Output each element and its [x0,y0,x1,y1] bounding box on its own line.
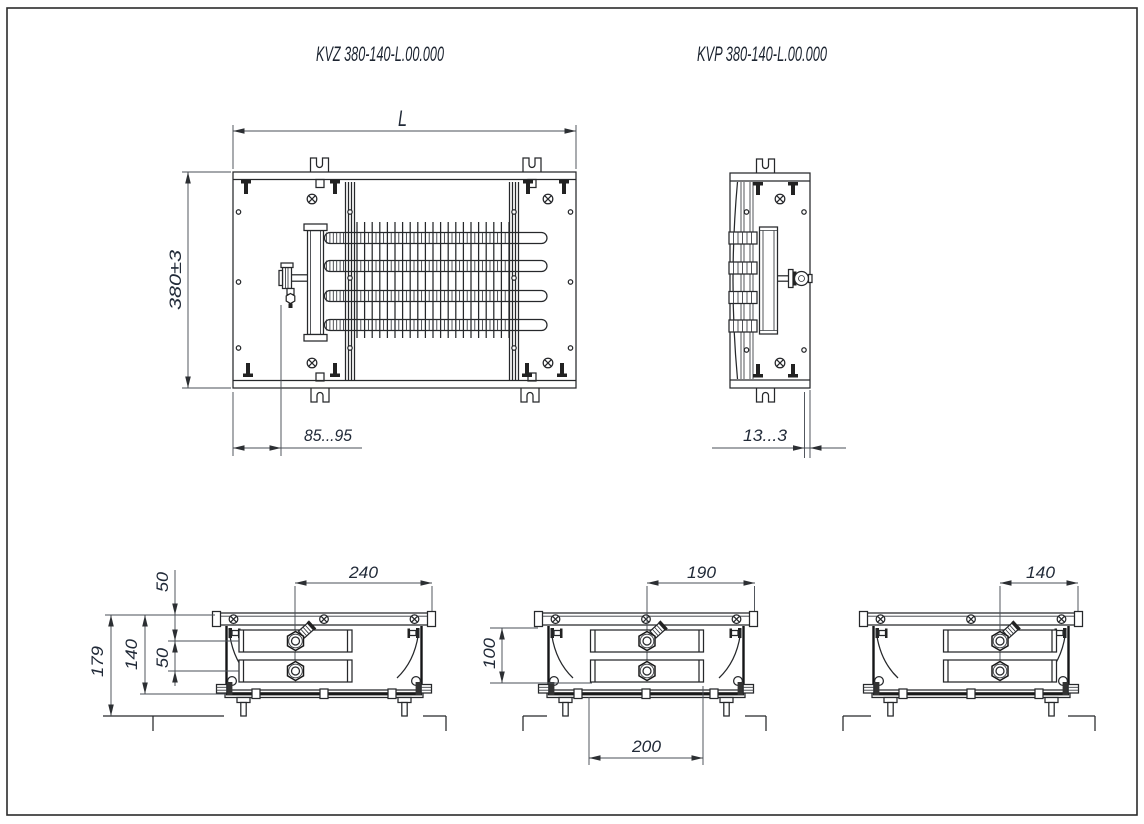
dim-a-top-to-axis-label: 50 [153,571,172,592]
dim-width-label: 380±3 [166,249,185,310]
title-kvz: KVZ 380-140-L.00.000 [316,43,444,66]
dim-b-inner-height-label: 100 [480,637,499,669]
dim-length: L [233,106,576,169]
dim-a-axis-to-edge: 240 [295,563,432,611]
mount-bracket [311,158,329,172]
dim-valve-offset-label: 85...95 [304,426,352,445]
dim-a-axis-to-edge-label: 240 [348,563,379,582]
dim-c-axis-to-edge-label: 140 [1026,563,1056,582]
mount-bracket [523,158,541,172]
section-view-140: 140 [843,563,1095,731]
dim-length-label: L [398,106,407,131]
dim-b-axis-to-edge: 190 [647,563,755,611]
title-kvp: KVP 380-140-L.00.000 [697,43,827,66]
collector [304,224,327,341]
dim-b-axis-to-edge-label: 190 [687,563,717,582]
section-view-240: 240 179 140 50 50 [88,563,446,731]
dim-a-heights: 179 140 50 50 [88,570,239,716]
dim-c-axis-to-edge: 140 [1000,563,1078,611]
kvp-side-view: 13...3 [712,159,846,458]
mount-bracket [521,388,539,402]
dim-a-axis-spacing-label: 50 [153,647,172,668]
dim-b-inner-height: 100 [480,628,592,683]
drawing-sheet: KVZ 380-140-L.00.000 KVP 380-140-L.00.00… [0,0,1144,824]
dim-valve-protrusion: 13...3 [712,390,846,458]
collector-end [760,227,778,334]
section-view-190: 190 100 200 [480,563,766,765]
dim-a-casing-height-label: 140 [122,638,141,670]
dim-valve-protrusion-label: 13...3 [743,426,788,445]
dim-a-total-height-label: 179 [88,645,107,677]
fins [357,222,509,338]
technical-drawing: KVZ 380-140-L.00.000 KVP 380-140-L.00.00… [0,0,1144,824]
dim-b-block-width-label: 200 [631,737,662,756]
dim-width: 380±3 [166,172,231,388]
mount-bracket [311,388,329,402]
mount-bracket [757,388,775,402]
kvz-plan-view: L 380±3 85...95 [166,106,576,456]
mount-bracket [757,159,775,173]
